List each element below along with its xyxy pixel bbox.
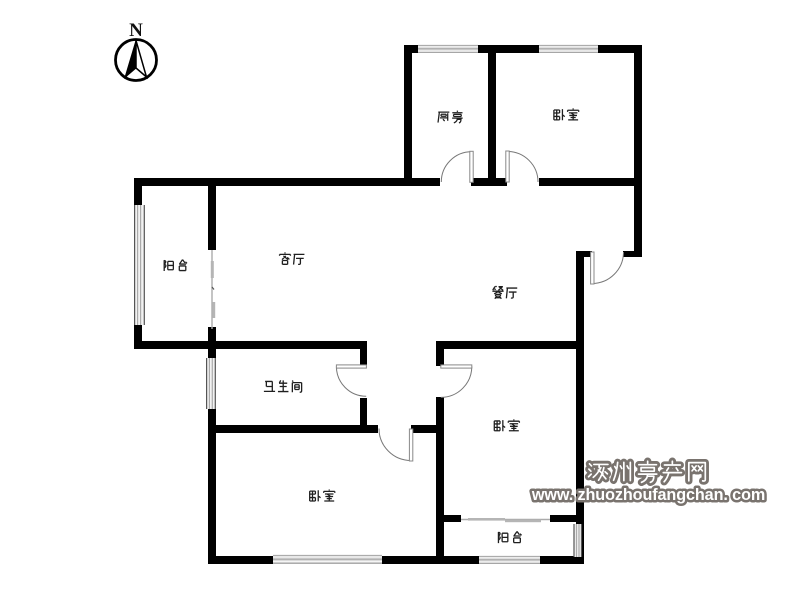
svg-text:N: N — [129, 20, 143, 41]
svg-text:www. zhuozhoufangchan. com: www. zhuozhoufangchan. com — [531, 486, 765, 504]
